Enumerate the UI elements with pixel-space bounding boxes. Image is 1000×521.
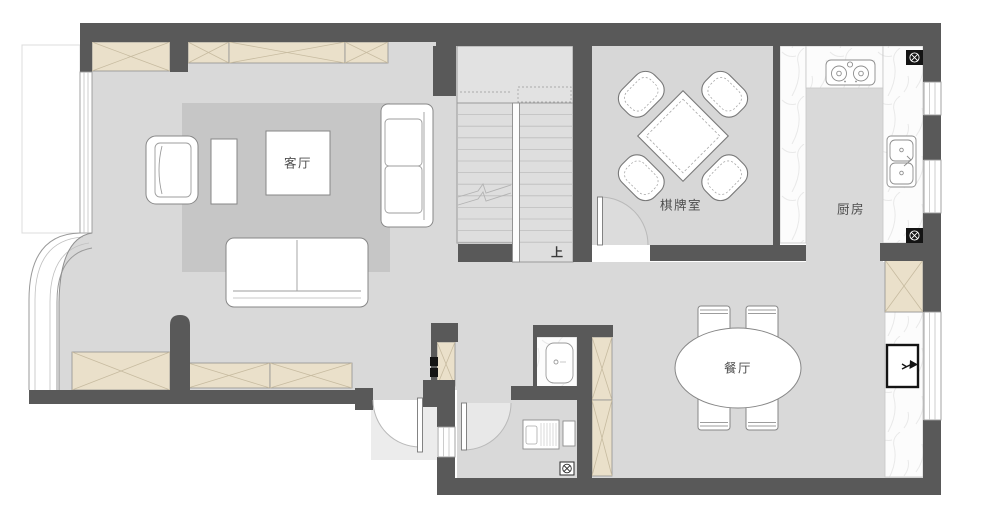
sofa-main (226, 238, 368, 307)
cabinet-entry (437, 342, 455, 386)
kitchen-sink (887, 136, 916, 187)
stair-landing (457, 46, 573, 103)
living-room-label: 客厅 (284, 153, 312, 172)
wall-kitchen-south (880, 243, 923, 261)
wall-utility-east (577, 337, 592, 478)
cabinet-bottom-2 (188, 363, 270, 388)
wall-entry-pier (423, 380, 455, 407)
wall-game-south (650, 245, 806, 261)
cabinet-top-1 (92, 42, 170, 71)
kitchen-floor (806, 88, 883, 262)
cabinet-utility-upper (592, 337, 612, 400)
game-room-label: 棋牌室 (660, 195, 702, 214)
exterior-terrace (22, 45, 80, 233)
wall-corner-nw (80, 23, 92, 72)
dining-room-label: 餐厅 (724, 358, 752, 377)
wall-east-2 (923, 115, 941, 160)
wall-stair-east (573, 46, 592, 262)
staircase (457, 46, 573, 262)
stairs-up-label: 上 (551, 244, 563, 261)
floor-drain-icon (560, 462, 574, 475)
utility-door-leaf (462, 403, 467, 450)
gas-stove (826, 60, 875, 85)
stair-base-wall (458, 244, 512, 262)
duct-icon (906, 228, 923, 243)
wall-game-kitchen (773, 46, 780, 245)
wall-entry-jamb (355, 388, 373, 410)
cabinet-bottom-1 (72, 352, 170, 390)
cabinet-dining (885, 260, 923, 312)
sofa-two-seat (381, 104, 433, 227)
wall-south-right (437, 478, 941, 495)
stair-divider (513, 103, 520, 262)
wall-vanity-west (533, 337, 537, 388)
wall-west-utility-2 (437, 457, 455, 480)
fridge (887, 345, 918, 387)
cabinet-top-3 (229, 42, 345, 63)
window-living-west (80, 72, 92, 233)
side-table (211, 139, 237, 204)
kitchen-label: 厨房 (837, 199, 865, 218)
cabinet-top-2 (188, 42, 229, 63)
wall-vanity-north (533, 325, 613, 337)
dining-counter (885, 312, 923, 477)
wall-vanity-south (511, 386, 577, 400)
window-kitchen-east-2 (924, 160, 941, 213)
floor-plan-drawing (0, 0, 1000, 521)
utility-stool (563, 421, 575, 446)
wall-entry-stub-top (431, 323, 458, 342)
window-kitchen-east-1 (924, 82, 941, 115)
wall-east-3 (923, 213, 941, 312)
wall-top-right (436, 23, 941, 46)
wall-pier-top (170, 23, 188, 72)
cabinet-top-4 (345, 42, 388, 63)
washbasin (546, 343, 573, 383)
duct-icon (906, 50, 923, 65)
cabinet-utility-lower (592, 400, 612, 476)
wall-east-1 (923, 46, 941, 82)
cabinet-bottom-3 (270, 363, 352, 388)
game-room-door-leaf (598, 197, 603, 245)
wall-east-4 (923, 420, 941, 478)
wall-west-utility-1 (437, 407, 455, 427)
window-dining-east (924, 312, 941, 420)
wall-game-door-stub (586, 245, 592, 261)
entry-door-leaf (418, 398, 423, 452)
floor-plan: 客厅 棋牌室 厨房 餐厅 上 (0, 0, 1000, 521)
kitchen-counter-left (780, 46, 806, 243)
wall-top-left (80, 23, 436, 42)
washing-machine (523, 420, 559, 449)
armchair (146, 136, 198, 204)
wall-round-stub (170, 315, 190, 392)
wall-stair-west (433, 46, 456, 96)
window-utility-west (438, 427, 455, 457)
wall-south-living (29, 390, 373, 404)
